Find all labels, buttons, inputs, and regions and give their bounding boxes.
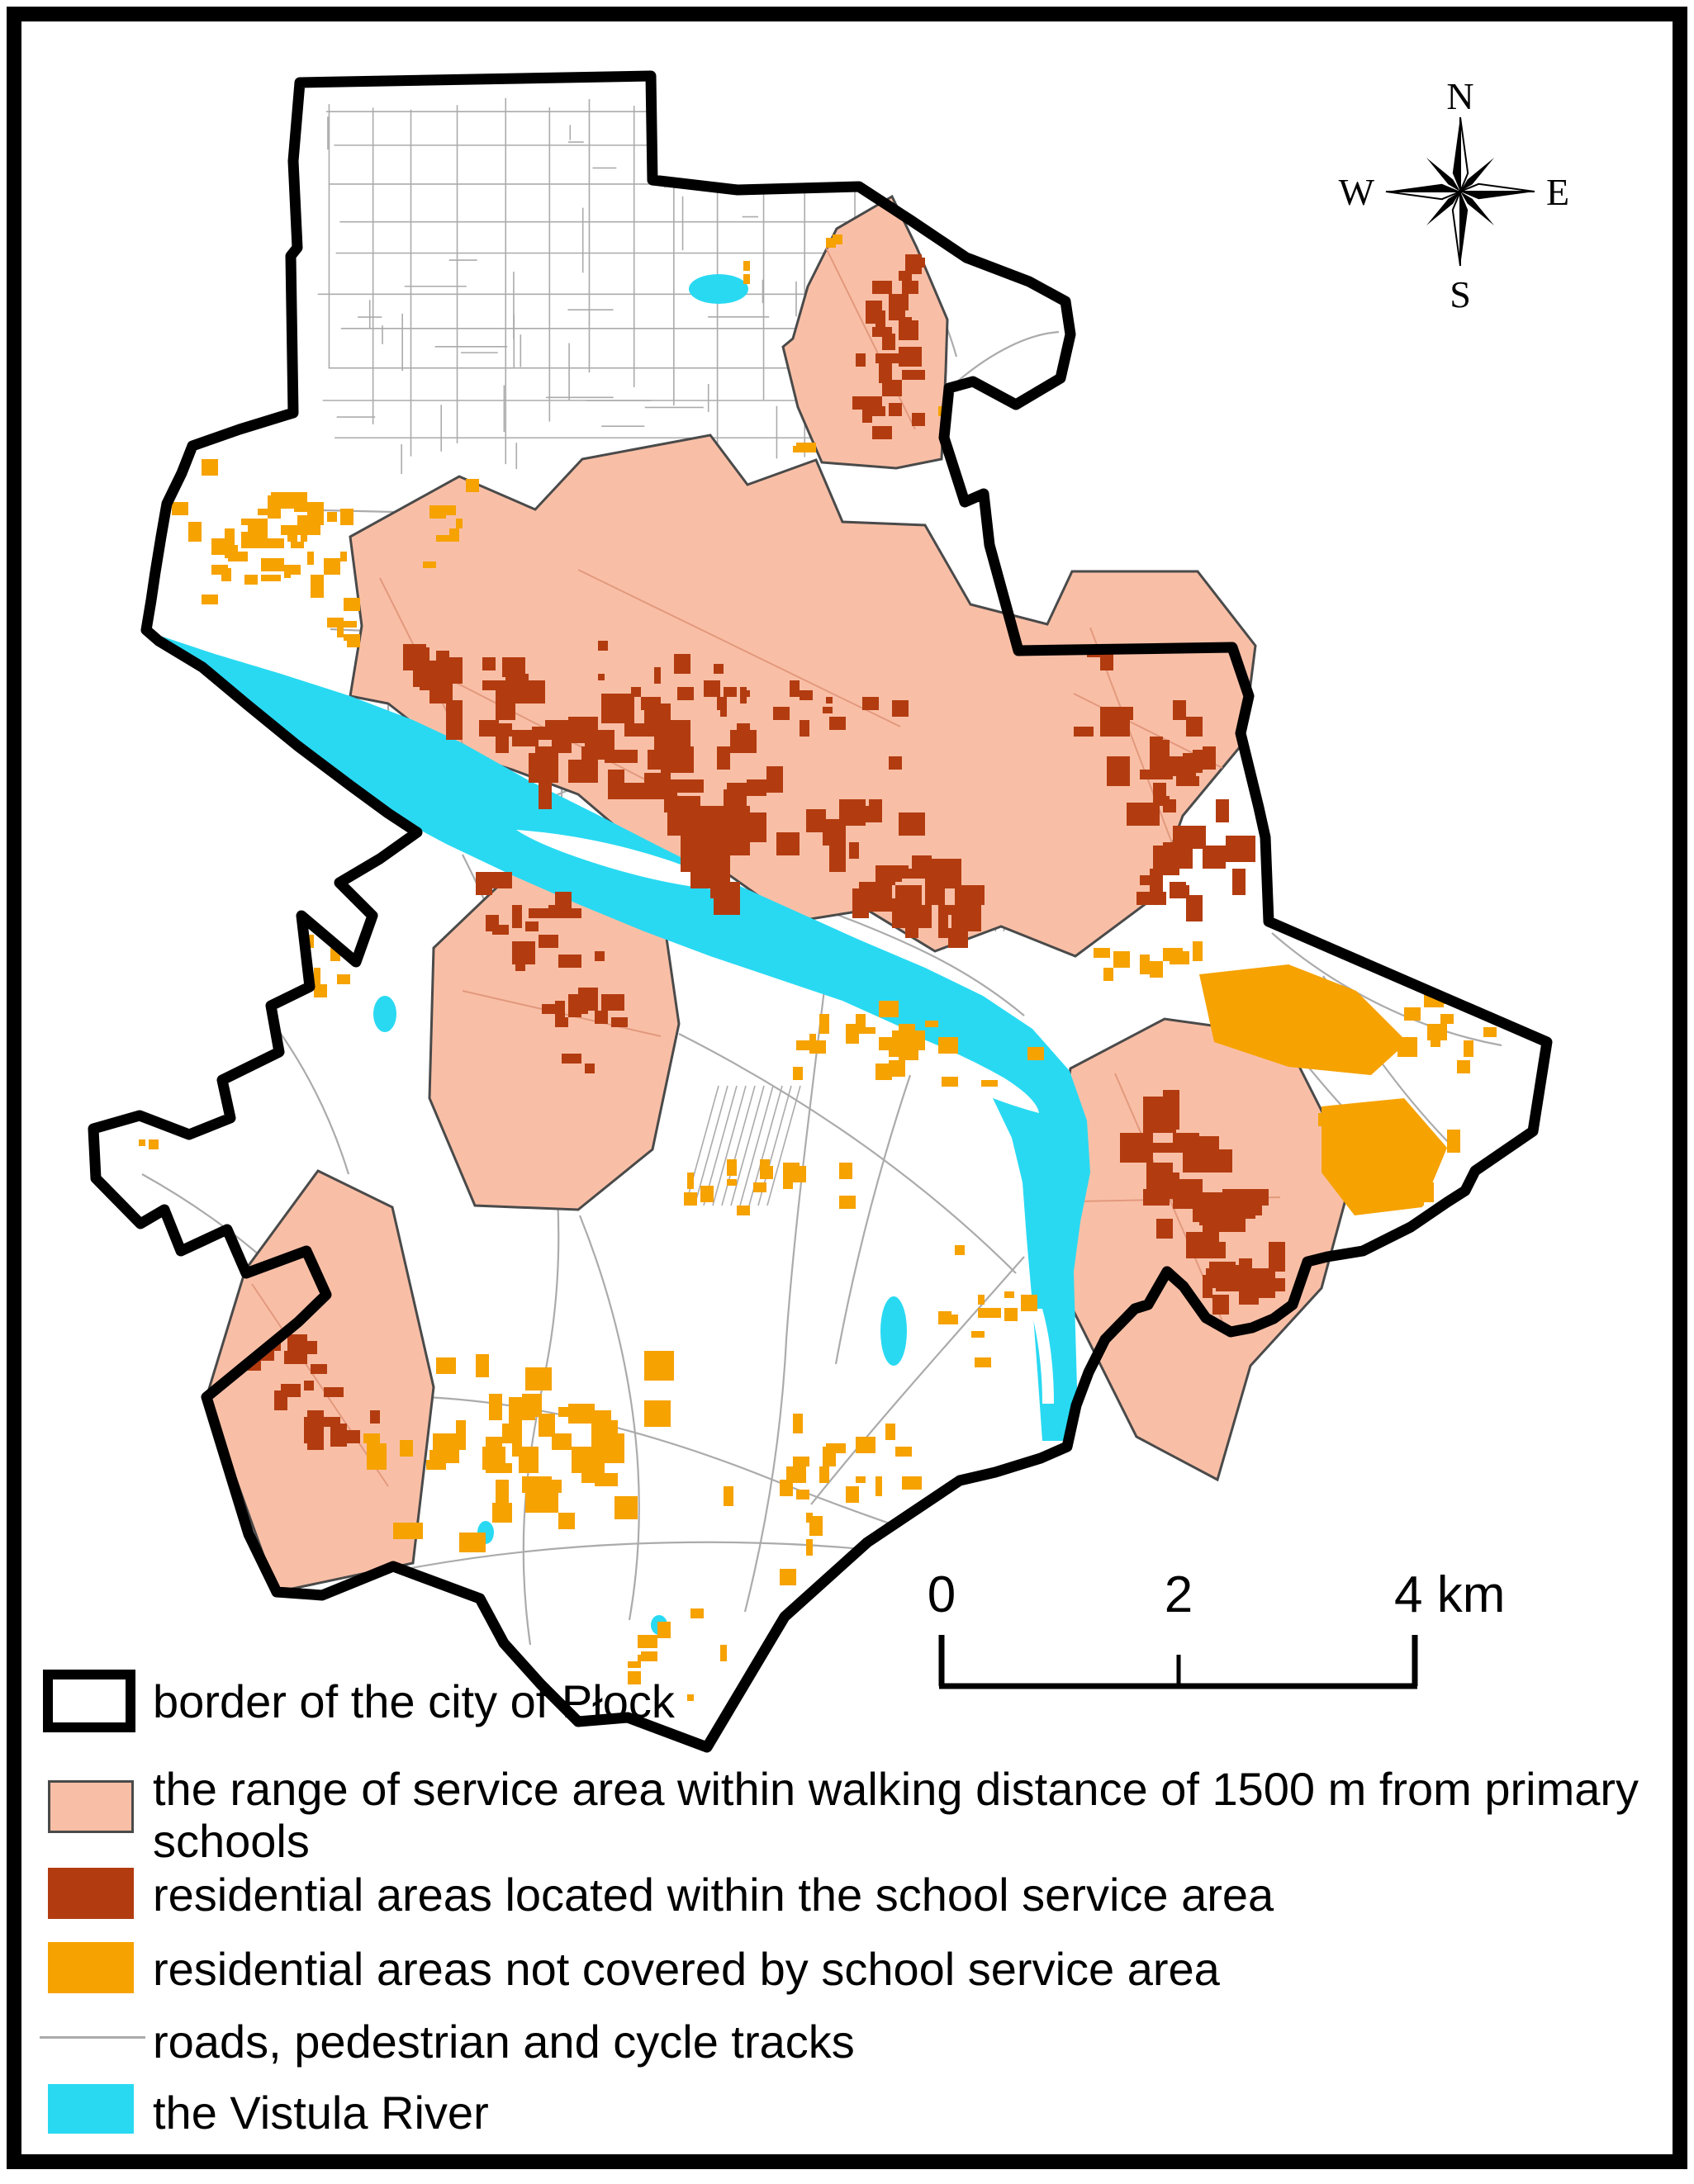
- pond: [373, 996, 396, 1032]
- pond: [880, 1296, 907, 1366]
- scale-bar: 0 2 4 km: [928, 1566, 1506, 1686]
- compass-label-north: N: [1446, 75, 1473, 117]
- scale-label-4km: 4 km: [1394, 1566, 1505, 1623]
- map-canvas: N S W E 0 2 4 km: [0, 0, 1694, 2184]
- scale-label-2: 2: [1165, 1566, 1193, 1623]
- scale-label-0: 0: [928, 1566, 956, 1623]
- compass-label-south: S: [1450, 273, 1471, 315]
- pond: [689, 274, 748, 304]
- compass-label-west: W: [1339, 171, 1375, 213]
- compass-rose: N S W E: [1339, 75, 1570, 315]
- compass-star-icon: [1386, 117, 1535, 266]
- page: { "compass": { "north": "N", "east": "E"…: [0, 0, 1694, 2184]
- compass-label-east: E: [1546, 171, 1569, 213]
